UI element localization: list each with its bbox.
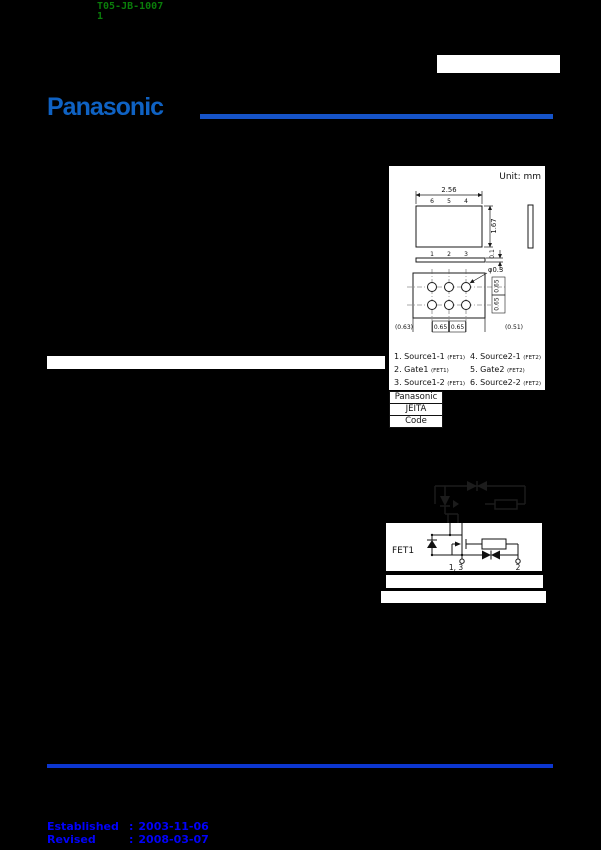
terminal-label-gate: 2 [516,563,521,571]
pad-hole [445,283,454,292]
pin-name: 5. Gate2 [470,365,504,374]
pin-num-6: 6 [430,198,434,205]
dim-right-margin: (0.51) [505,324,523,331]
pin-fet-tag: (FET1) [431,368,449,374]
dim-height: 1.67 [490,218,498,233]
pin-list-row: 1. Source1-1 (FET1) 4. Source2-1 (FET2) [394,350,542,363]
pad-hole [428,301,437,310]
doc-page-number: 1 [97,12,163,22]
established-label: Established [47,820,129,833]
code-table-row-code: Code [389,415,443,428]
pin-list-row: 2. Gate1 (FET1) 5. Gate2 (FET2) [394,363,542,376]
package-front-view [416,258,485,262]
caption-bar-1 [386,575,543,588]
pin-name: 3. Source1-2 [394,378,445,387]
revised-date: 2008-03-07 [138,833,208,846]
pad-hole [428,283,437,292]
terminal-label-source: 1, 3 [449,563,464,571]
pin-fet-tag: (FET2) [523,381,541,387]
pad-hole [445,301,454,310]
footer-rule [47,764,553,768]
pin-name: 1. Source1-1 [394,352,445,361]
pad-hole [462,283,471,292]
pin-num-5: 5 [447,198,451,205]
code-table-row-panasonic: Panasonic [389,391,443,404]
dim-row-pitch-2: 0.65 [494,297,501,311]
pin-name: 2. Gate1 [394,365,428,374]
pin-num-4: 4 [464,198,468,205]
package-diagram-panel: Unit: mm 2.56 6 5 4 1 2 3 1.67 [389,166,545,390]
doc-number-block: T05-JB-1007 1 [97,2,163,22]
caption-bar-2 [381,591,546,603]
fet1-label: FET1 [392,546,414,556]
protection-diode [491,551,500,560]
section-header-bar [47,356,385,369]
pin-fet-tag: (FET2) [523,355,541,361]
fet1-circuit-drawing: FET1 [386,523,542,571]
fet2-circuit-faint [415,476,545,523]
pin-fet-tag: (FET2) [507,368,525,374]
pin-list-row: 3. Source1-2 (FET1) 6. Source2-2 (FET2) [394,376,542,389]
footer-dates: Established:2003-11-06 Revised:2008-03-0… [47,820,209,846]
pin-num-2: 2 [447,251,451,258]
panasonic-logo: Panasonic [47,93,163,122]
package-top-view [416,206,482,247]
pin-fet-tag: (FET1) [447,355,465,361]
dim-thickness: 0.1 [489,249,496,259]
doc-number: T05-JB-1007 [97,2,163,12]
revised-row: Revised:2008-03-07 [47,833,209,846]
part-code-table: Panasonic JEITA Code [389,391,443,428]
dim-col-pitch-1: 0.65 [434,324,448,331]
revised-label: Revised [47,833,129,846]
dim-width: 2.56 [441,186,456,194]
pad-hole [462,301,471,310]
pin-list: 1. Source1-1 (FET1) 4. Source2-1 (FET2) … [394,350,542,389]
pin-name: 6. Source2-2 [470,378,521,387]
protection-diode [482,551,491,560]
pin-num-3: 3 [464,251,468,258]
established-row: Established:2003-11-06 [47,820,209,833]
pin-fet-tag: (FET1) [447,381,465,387]
datasheet-page: T05-JB-1007 1 Panasonic Unit: mm 2.56 [0,0,601,850]
dim-row-pitch-1: 0.65 [494,279,501,293]
header-rule [200,114,553,119]
established-date: 2003-11-06 [138,820,208,833]
fet1-circuit-panel: FET1 [386,523,542,571]
unit-label: Unit: mm [499,172,541,182]
dim-left-margin: (0.63) [395,324,413,331]
pin-name: 4. Source2-1 [470,352,521,361]
blank-label-box [437,55,560,73]
pin-num-1: 1 [430,251,434,258]
dim-col-pitch-2: 0.65 [451,324,465,331]
dim-hole-diameter: φ0.3 [488,266,503,274]
gate-resistor [482,539,506,549]
package-side-view [528,205,533,248]
